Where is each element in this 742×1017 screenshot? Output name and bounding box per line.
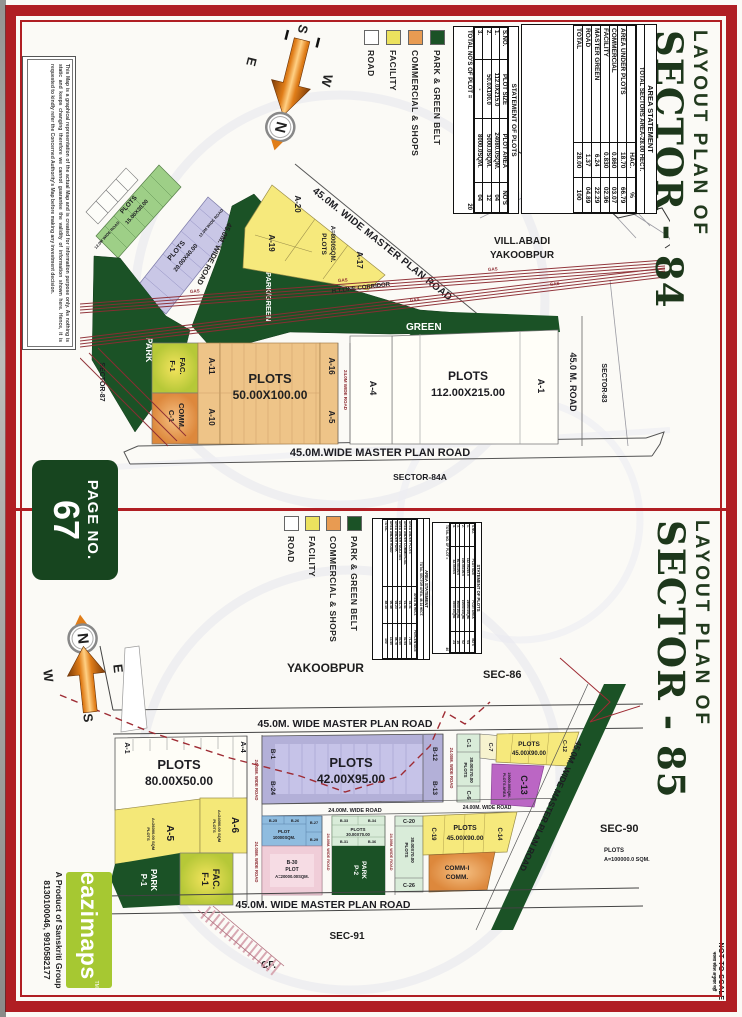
legend-swatch-park — [347, 516, 362, 531]
label-plots-8000-2: A=8000SQM. — [329, 226, 335, 263]
legend-item: FACILITY — [386, 30, 401, 150]
label-plots-50-2: 50.00X100.00 — [233, 388, 308, 402]
table-row: ROAD1.3704.89 — [583, 26, 592, 213]
svg-text:GAS: GAS — [410, 297, 420, 303]
label-road-45m-right: 45.0 M. ROAD — [568, 352, 578, 412]
scanned-layout-plan-page: PLOTS 15.00X30.00 12.0M WIDE ROAD PLOTS … — [0, 0, 742, 1017]
label-comm1-2: COMM. — [446, 874, 469, 881]
label-road24-v2: 24.00M. WIDE ROAD — [449, 748, 454, 789]
table-row: TOTAL28.00100 — [574, 26, 583, 213]
label-a5sub-1: PLOTS — [146, 827, 151, 841]
legend-swatch-road — [284, 516, 299, 531]
label-c14: C-14 — [496, 827, 502, 841]
label-b27: B-27 — [310, 821, 318, 825]
title-line2: SECTOR - 85 — [649, 520, 693, 820]
label-c20: C-20 — [403, 819, 415, 825]
label-b25: B-25 — [269, 819, 277, 823]
label-b24: B-24 — [269, 781, 276, 795]
table-row: 1.112.0X215.024080.0SQM.04 — [465, 524, 470, 653]
legend-swatch-park — [430, 30, 445, 45]
table-footer: TOTAL NO. OF PLOT = 40 — [445, 523, 450, 653]
eazimaps-logo: eazimaps TM — [66, 872, 112, 988]
svg-text:GAS: GAS — [550, 281, 560, 287]
label-c1-1: C-1 — [167, 410, 176, 422]
label-road24-v4: 24.00M. WIDE ROAD — [389, 834, 393, 871]
area-statement-table: AREA IN HECT. PERCENTAGE AREA UNDER PLOT… — [382, 519, 417, 659]
label-a6: A-6 — [229, 817, 240, 834]
table-row: MASTER GREEN6.2422.29 — [592, 26, 601, 213]
brand-phones: 8130100046, 9910582177 — [42, 880, 52, 979]
label-sector84a: SECTOR-84A — [393, 472, 447, 482]
section-divider-line — [12, 508, 730, 511]
table-title: AREA STATEMENT — [423, 519, 429, 659]
label-b26: B-26 — [291, 819, 299, 823]
label-sector83: SECTOR-83 — [600, 363, 607, 402]
label-plots-112-2: 112.00X215.00 — [431, 387, 505, 399]
header-row: S.NO. PLOT SIZE PLOT AREA NO'S — [470, 524, 475, 653]
label-a1: A-1 — [536, 379, 546, 394]
table-row: 1.112.0X215.024080.0SQM.04 — [491, 28, 499, 213]
label-b13: B-13 — [431, 781, 438, 795]
sector85-title: LAYOUT PLAN OF SECTOR - 85 — [650, 520, 712, 820]
label-c19: C-19 — [430, 827, 436, 841]
label-b33: B-33 — [340, 819, 348, 823]
disclaimer-text: This Map is a graphical representation o… — [27, 59, 73, 347]
label-plots100k-1: PLOTS — [604, 848, 624, 854]
label-sec86: SEC-86 — [483, 669, 522, 681]
label-vill-abadi-2: YAKOOBPUR — [490, 250, 555, 261]
label-plots-80-1: PLOTS — [157, 757, 201, 772]
label-c13sub-2: 19000.00SQM. — [507, 772, 511, 798]
legend-item: PARK & GREEN BELT — [347, 516, 362, 628]
header-row: HAC. % — [627, 26, 636, 213]
label-a17: A-17 — [355, 251, 364, 269]
table-row: AREA UNDER COMMERCIAL01.4102.94 — [402, 520, 407, 659]
label-a6sub-1: PLOTS — [212, 819, 217, 833]
boundary-zigzag-right — [560, 658, 640, 722]
legend-item: COMMERCIAL & SHOPS — [326, 516, 341, 628]
label-c6: C-6 — [465, 791, 471, 800]
label-mpr-top: 45.0M. WIDE MASTER PLAN ROAD — [257, 718, 432, 730]
table-row: 3.-8000.0SQM.04 — [475, 28, 483, 213]
table-row: AREA UNDER ROAD06.4813.45 — [387, 520, 392, 659]
label-a1: A-1 — [123, 742, 130, 753]
sector85-plot-statement: STATEMENT OF PLOTS S.NO. PLOT SIZE PLOT … — [432, 522, 482, 654]
header-row: S.NO. PLOT SIZE PLOT AREA NO'S — [499, 28, 507, 213]
label-b31: B-31 — [340, 840, 348, 844]
table-row: AREA UNDER PARK04.2308.78 — [392, 520, 397, 659]
table-subtitle: TOTAL SECTORS AREA-28.00 HECT. — [636, 25, 644, 213]
label-a5: A-5 — [327, 411, 336, 424]
label-road24-h1: 24.00M. WIDE ROAD — [328, 808, 382, 814]
label-plots-45b-2: 45.00X90.00 — [447, 835, 484, 842]
sector84-plot-statement: STATEMENT OF PLOTS S.NO. PLOT SIZE PLOT … — [453, 26, 519, 214]
brand-tagline: A Product of Sanskriti Group — [54, 872, 64, 989]
label-c26: C-26 — [403, 883, 415, 889]
label-plots-8000-1: PLOTS — [320, 233, 327, 255]
label-a5sub-2: A=26000.00 SQM — [151, 818, 156, 851]
c13-block — [491, 764, 544, 807]
legend-item: COMMERCIAL & SHOPS — [408, 30, 423, 150]
legend-swatch-commercial — [326, 516, 341, 531]
label-mpr-bottom: 45.0M. WIDE MASTER PLAN ROAD — [235, 899, 410, 911]
label-a10: A-10 — [207, 408, 216, 426]
not-to-scale-note: NOT TO SCALE नक्शा स्केल अनुसार नहीं — [694, 934, 724, 1009]
legend-item: FACILITY — [305, 516, 320, 628]
label-b30-1: B-30 — [287, 860, 298, 866]
table-subtitle: TOTAL SECTOR AREA- 48.14 HECT. — [417, 519, 423, 659]
compass-n: N — [74, 632, 92, 645]
label-plot10000-2: 10000SQM. — [273, 835, 295, 840]
label-f1-1: F-1 — [200, 872, 210, 886]
label-c13sub-1: PLOTS AREA — [502, 773, 506, 798]
label-a6sub-2: A=24000.00 SQM — [217, 810, 222, 843]
label-p2-1: P-2 — [352, 865, 359, 876]
label-road24-v3: 24.00M. WIDE ROAD — [326, 834, 330, 871]
label-p1-1: P-1 — [139, 874, 148, 887]
label-plots30-c-2: 30.00X70.00 — [469, 757, 474, 783]
compass-w: W — [40, 669, 56, 683]
table-row: AREA UNDER PLOTS18.7066.79 — [618, 26, 627, 213]
brand-block: eazimaps TM A Product of Sanskriti Group… — [30, 856, 112, 1004]
label-b36: B-36 — [368, 840, 376, 844]
legend-swatch-road — [364, 30, 379, 45]
label-road24-h2: 24.00M. WIDE ROAD — [463, 805, 512, 811]
label-f1-1: F-1 — [168, 360, 177, 371]
label-plots-45t-1: PLOTS — [518, 741, 540, 748]
label-plots-112-1: PLOTS — [448, 369, 488, 383]
table-row: AREA UNDER FACILITIES01.7103.55 — [397, 520, 402, 659]
svg-text:GAS: GAS — [338, 277, 348, 283]
label-p2-2: PARK — [360, 861, 367, 879]
legend-item: ROAD — [364, 30, 379, 150]
label-c13: C-13 — [519, 775, 529, 795]
table-title: STATEMENT OF PLOTS — [475, 523, 481, 653]
sector85-area-statement: AREA STATEMENT TOTAL SECTOR AREA- 48.14 … — [372, 518, 430, 660]
label-c1-2: COMM. — [177, 403, 186, 429]
disclaimer-box: This Map is a graphical representation o… — [22, 56, 76, 350]
page-number-value: 67 — [49, 500, 85, 540]
label-plots30-b-2: 30.00X70.00 — [346, 832, 370, 837]
legend-item: PARK & GREEN BELT — [430, 30, 445, 150]
label-plots-50-1: PLOTS — [248, 371, 292, 386]
label-f1-2: FAC. — [211, 869, 221, 890]
label-plots30-v-1: PLOTS — [404, 842, 409, 857]
svg-text:GAS: GAS — [190, 288, 200, 294]
table-row: COMMERCIAL0.86003.07 — [609, 26, 618, 213]
label-plots-80-2: 80.00X50.00 — [145, 774, 213, 788]
plot-statement-table: S.NO. PLOT SIZE PLOT AREA NO'S 1.112.0X2… — [450, 523, 475, 653]
title-line1: LAYOUT PLAN OF — [690, 520, 712, 820]
label-plots-45t-2: 45.00X90.00 — [512, 751, 547, 757]
table-title: AREA STATEMENT — [644, 25, 656, 213]
label-road24-v1b: 24.00M. WIDE ROAD — [254, 842, 259, 883]
sector84-area-statement: AREA STATEMENT TOTAL SECTORS AREA-28.00 … — [521, 24, 657, 214]
label-a4: A-4 — [239, 741, 246, 752]
label-vill-abadi-1: VILL.ABADI — [494, 236, 550, 247]
table-footer: TOTAL NO'S OF PLOT = 20 — [465, 27, 474, 213]
plot-statement-table: S.NO. PLOT SIZE PLOT AREA NO'S 1.112.0X2… — [474, 27, 508, 213]
legend-sector84: PARK & GREEN BELT COMMERCIAL & SHOPS FAC… — [341, 30, 445, 150]
label-plots30-c-1: PLOTS — [463, 762, 468, 777]
comm-block — [429, 852, 495, 892]
scan-edge-shadow — [0, 0, 6, 1017]
label-a16: A-16 — [327, 357, 336, 375]
sector84-title: LAYOUT PLAN OF SECTOR - 84 — [650, 30, 710, 330]
trademark-mark: TM — [93, 981, 99, 988]
compass-rose-sector85: N W E S — [40, 608, 138, 734]
legend-swatch-commercial — [408, 30, 423, 45]
logo-text: eazimaps — [76, 872, 103, 980]
legend-swatch-facility — [386, 30, 401, 45]
label-a4: A-4 — [368, 381, 378, 396]
label-a11: A-11 — [207, 358, 216, 375]
label-b12: B-12 — [431, 747, 438, 761]
label-b34: B-34 — [368, 819, 377, 823]
label-p1-2: PARK — [149, 869, 158, 891]
page-number-badge: PAGE NO. 67 — [32, 460, 118, 580]
label-park-green: PARK/GREEN — [264, 272, 273, 321]
label-b1: B-1 — [269, 749, 276, 760]
table-title: STATEMENT OF PLOTS — [508, 27, 518, 213]
area-statement-table: HAC. % AREA UNDER PLOTS18.7066.79COMMERC… — [573, 25, 636, 213]
title-line1: LAYOUT PLAN OF — [688, 30, 710, 330]
header-row: AREA IN HECT. PERCENTAGE — [412, 520, 417, 659]
label-plots100k-2: A=100000.0 SQM. — [604, 857, 650, 863]
label-mpr-bottom: 45.0M.WIDE MASTER PLAN ROAD — [290, 447, 470, 459]
label-c1: C-1 — [465, 739, 471, 748]
table-row: 2.100.0X100.010000.0SQM.02 — [460, 524, 465, 653]
sector85-map: 45.0M. WIDE MASTER PLAN ROAD A-1 A-4 PLO… — [55, 640, 655, 1012]
label-sec90: SEC-90 — [600, 823, 639, 835]
table-row: TOTAL48.14100 — [383, 520, 388, 659]
label-comm1-1: COMM-I — [445, 865, 470, 872]
label-plots30-v-2: 30.00X70.00 — [410, 837, 415, 863]
label-plots-42-2: 42.00X95.00 — [317, 772, 385, 786]
label-plots-42-1: PLOTS — [329, 755, 373, 770]
label-f1-2: FAC. — [178, 357, 187, 374]
table-row: 4.42.0X95.03990.0SQM.24 — [450, 524, 455, 653]
label-c7: C-7 — [487, 743, 493, 752]
label-a19: A-19 — [267, 234, 276, 252]
label-sec91: SEC-91 — [329, 931, 364, 942]
label-b30-3: A=20000.00SQM. — [275, 874, 309, 879]
label-a20: A-20 — [293, 195, 302, 213]
page-number-label: PAGE NO. — [85, 480, 102, 560]
label-plot10000-1: PLOT — [278, 829, 290, 834]
label-green: GREEN — [406, 322, 442, 333]
compass-s: S — [80, 713, 96, 723]
table-row: 3.80.0X100.08000.0SQM.10 — [455, 524, 460, 653]
legend-swatch-facility — [305, 516, 320, 531]
label-a5: A-5 — [164, 825, 175, 842]
legend-sector85: PARK & GREEN BELT COMMERCIAL & SHOPS FAC… — [266, 516, 362, 628]
label-plots-45b-1: PLOTS — [453, 825, 477, 832]
label-b30-2: PLOT — [285, 867, 298, 873]
compass-e: E — [110, 663, 126, 673]
svg-text:GAS: GAS — [488, 266, 498, 272]
label-road-24m: 24.0M WIDE ROAD — [343, 370, 348, 411]
table-row: FACILITY0.83002.96 — [600, 26, 609, 213]
table-row: AREA UNDER PLOTS34.3171.28 — [407, 520, 412, 659]
label-b29: B-29 — [310, 838, 318, 842]
label-yakoobpur: YAKOOBPUR — [287, 661, 364, 675]
legend-item: ROAD — [284, 516, 299, 628]
table-row: 2.50.0X100.05000.0SQM.12 — [483, 28, 491, 213]
